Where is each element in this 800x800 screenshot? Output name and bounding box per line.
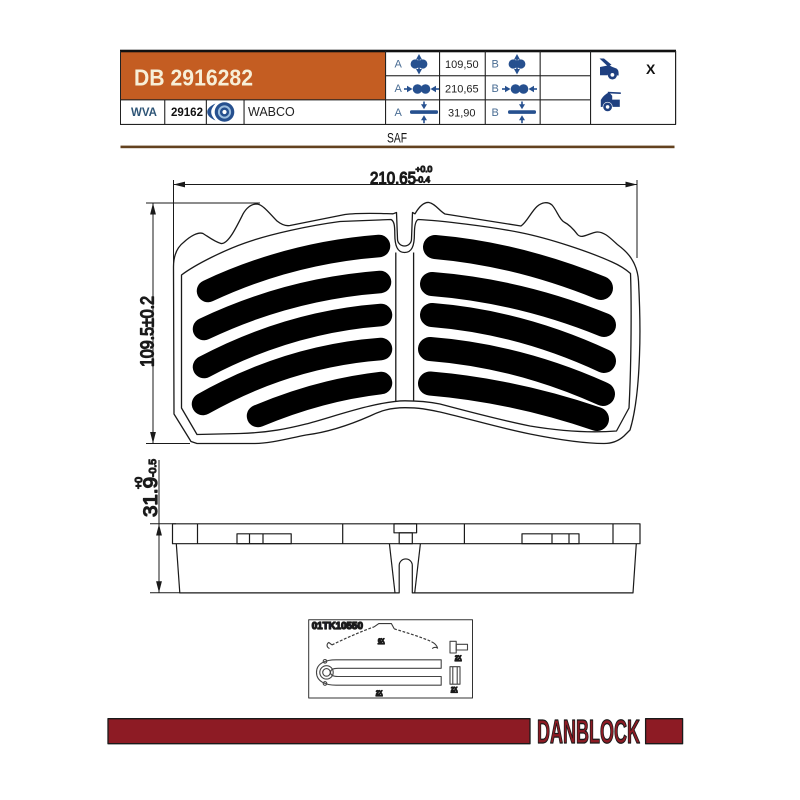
svg-text:109.5±0.2: 109.5±0.2 xyxy=(138,296,158,367)
svg-text:B: B xyxy=(492,83,499,95)
svg-text:B: B xyxy=(492,59,499,71)
svg-text:210.65: 210.65 xyxy=(370,168,416,188)
svg-text:WVA: WVA xyxy=(131,107,157,119)
svg-text:+0: +0 xyxy=(133,477,145,489)
svg-text:210,65: 210,65 xyxy=(445,84,479,96)
svg-text:DANBLOCK: DANBLOCK xyxy=(537,713,640,750)
svg-text:SAF: SAF xyxy=(387,131,407,146)
svg-text:6X: 6X xyxy=(378,639,385,645)
svg-text:2X: 2X xyxy=(451,687,458,693)
svg-text:109,50: 109,50 xyxy=(445,59,479,71)
svg-text:A: A xyxy=(395,107,403,119)
svg-text:2X: 2X xyxy=(376,691,383,697)
svg-text:01TK10550: 01TK10550 xyxy=(312,621,364,632)
svg-text:B: B xyxy=(492,107,499,119)
svg-text:WABCO: WABCO xyxy=(248,105,295,119)
svg-text:+0.0: +0.0 xyxy=(416,164,433,174)
svg-text:-0.4: -0.4 xyxy=(416,175,431,185)
svg-text:A: A xyxy=(395,83,403,95)
svg-text:31,90: 31,90 xyxy=(448,107,476,119)
svg-text:X: X xyxy=(646,61,656,77)
svg-text:-0.5: -0.5 xyxy=(147,459,159,477)
svg-text:A: A xyxy=(395,59,403,71)
svg-text:2X: 2X xyxy=(455,656,462,662)
svg-text:DB 2916282: DB 2916282 xyxy=(134,65,253,91)
svg-text:29162: 29162 xyxy=(171,107,203,119)
